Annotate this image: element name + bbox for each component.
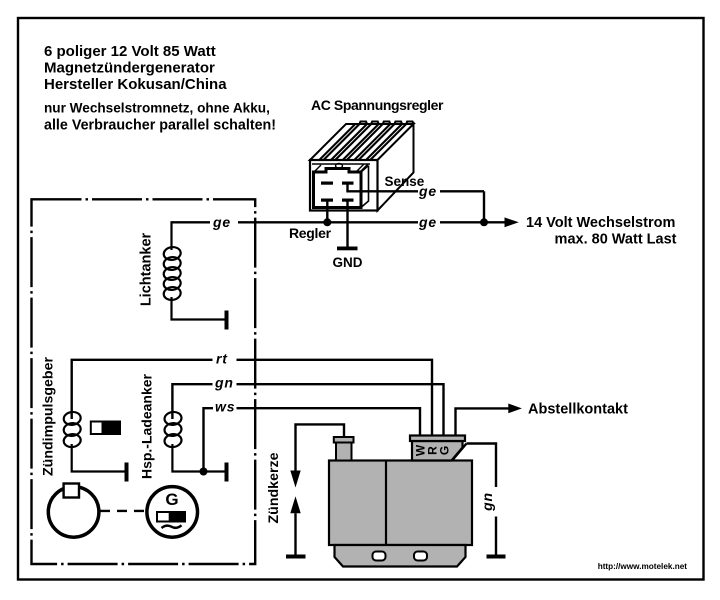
svg-text:6 poliger 12 Volt 85 Watt: 6 poliger 12 Volt 85 Watt: [44, 43, 216, 60]
svg-text:gn: gn: [479, 492, 495, 512]
svg-text:nur Wechselstromnetz, ohne Akk: nur Wechselstromnetz, ohne Akku,: [44, 101, 270, 116]
svg-text:http://www.motelek.net: http://www.motelek.net: [598, 562, 688, 571]
svg-text:GND: GND: [333, 255, 363, 270]
svg-text:rt: rt: [216, 350, 228, 366]
svg-text:AC Spannungsregler: AC Spannungsregler: [311, 97, 444, 113]
svg-text:ge: ge: [418, 214, 437, 230]
svg-text:Zündimpulsgeber: Zündimpulsgeber: [41, 357, 57, 477]
svg-text:alle Verbraucher parallel scha: alle Verbraucher parallel schalten!: [44, 118, 276, 134]
svg-text:gn: gn: [214, 375, 234, 391]
svg-text:G: G: [165, 490, 178, 509]
svg-text:Lichtanker: Lichtanker: [139, 232, 155, 306]
svg-text:Hersteller Kokusan/China: Hersteller Kokusan/China: [44, 76, 227, 93]
svg-text:Magnetzündergenerator: Magnetzündergenerator: [44, 60, 215, 77]
svg-text:ge: ge: [212, 214, 231, 230]
svg-text:Abstellkontakt: Abstellkontakt: [528, 402, 628, 418]
svg-text:max. 80 Watt Last: max. 80 Watt Last: [555, 232, 677, 248]
svg-text:Zündkerze: Zündkerze: [266, 452, 282, 523]
svg-text:G: G: [437, 446, 451, 455]
svg-text:14 Volt Wechselstrom: 14 Volt Wechselstrom: [526, 215, 675, 231]
svg-text:Hsp.-Ladeanker: Hsp.-Ladeanker: [139, 373, 155, 479]
svg-text:Regler: Regler: [289, 225, 332, 241]
svg-text:ge: ge: [418, 183, 437, 199]
svg-text:ws: ws: [215, 399, 235, 415]
